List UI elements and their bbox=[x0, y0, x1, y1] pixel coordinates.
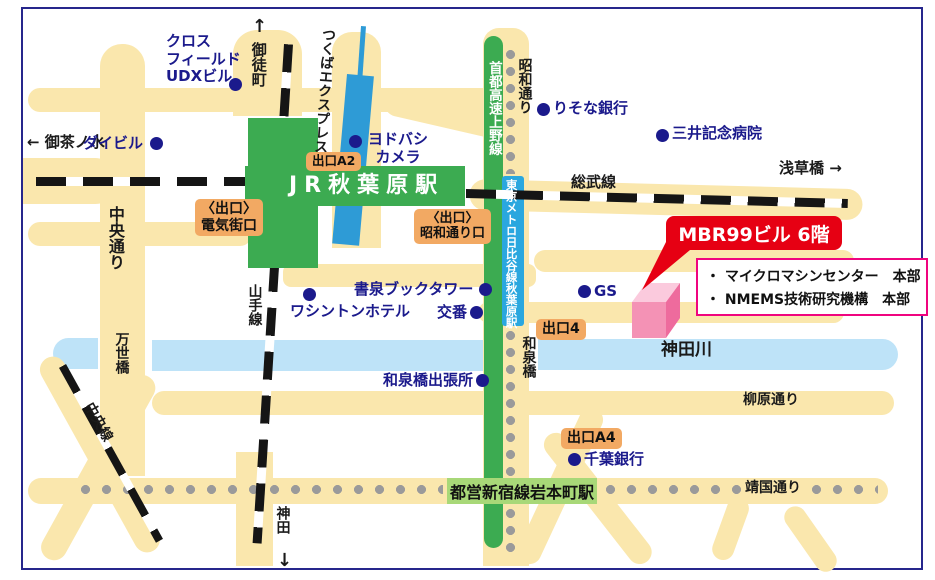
label-kanda-arrow: ↓ bbox=[277, 550, 292, 571]
label-chuo-dori: 中央通り bbox=[105, 206, 124, 270]
poi-crossfield-udx: クロス フィールド UDXビル bbox=[166, 33, 241, 86]
shinjuku-line-dots-right bbox=[806, 484, 878, 495]
label-manseibashi: 万世橋 bbox=[113, 332, 130, 374]
poi-risona-bank: りそな銀行 bbox=[553, 100, 628, 118]
tenant-item-micromachine-center: ・ マイクロマシンセンター 本部 bbox=[706, 266, 926, 286]
poi-mitsui-hospital: 三井記念病院 bbox=[672, 125, 762, 143]
poi-izumibashi-office: 和泉橋出張所 bbox=[383, 372, 473, 390]
poi-marker-dot bbox=[470, 306, 483, 319]
poi-gs: GS bbox=[594, 283, 617, 301]
poi-yodobashi-camera: ヨドバシ カメラ bbox=[366, 131, 430, 166]
sobu-line-rail-west bbox=[36, 177, 246, 186]
label-shuto-expressway: 首都高速上野線 bbox=[485, 61, 501, 156]
access-map: JR秋葉原駅 都営新宿線岩本町駅 MBR99ビル 6階 ・ マイクロマシンセンタ… bbox=[0, 0, 935, 580]
metro-dotted-line-vertical-mid bbox=[505, 327, 516, 476]
poi-marker-dot bbox=[303, 288, 316, 301]
mbr99-callout: MBR99ビル 6階 bbox=[666, 216, 842, 250]
poi-marker-dot bbox=[537, 103, 550, 116]
poi-marker-dot bbox=[349, 135, 362, 148]
poi-marker-dot bbox=[578, 285, 591, 298]
poi-shosen-book-tower: 書泉ブックタワー bbox=[354, 281, 473, 299]
badge-exit-denkigai: 〈出口〉 電気街口 bbox=[195, 199, 263, 236]
poi-marker-dot bbox=[568, 453, 581, 466]
label-okachimachi: 御徒町 bbox=[249, 42, 267, 87]
label-kanda-river: 神田川 bbox=[661, 340, 712, 360]
label-yanagihara-dori: 柳原通り bbox=[743, 392, 799, 409]
poi-marker-dot bbox=[479, 283, 492, 296]
label-yasukuni-dori: 靖国通り bbox=[745, 480, 801, 497]
poi-daibiru: ダイビル bbox=[83, 135, 143, 153]
toei-iwamotocho-station: 都営新宿線岩本町駅 bbox=[447, 478, 597, 504]
badge-exit-showadori: 〈出口〉 昭和通り口 bbox=[414, 209, 491, 244]
label-okachimachi-arrow: ↑ bbox=[252, 16, 267, 37]
jr-akihabara-station-name: JR秋葉原駅 bbox=[245, 166, 465, 206]
label-metro-hibiya-akihabara: 東京メトロ日比谷線秋葉原駅 bbox=[504, 179, 518, 329]
badge-exit-4: 出口4 bbox=[536, 319, 586, 340]
poi-chiba-bank: 千葉銀行 bbox=[584, 451, 644, 469]
metro-dotted-line-vertical-bottom bbox=[505, 505, 516, 552]
mbr99-callout-title: MBR99ビル 6階 bbox=[678, 220, 829, 247]
poi-koban: 交番 bbox=[437, 304, 467, 322]
label-asakusabashi: 浅草橋 → bbox=[779, 160, 842, 178]
toei-iwamotocho-station-name: 都営新宿線岩本町駅 bbox=[450, 479, 594, 503]
poi-marker-dot bbox=[476, 374, 489, 387]
label-showa-dori: 昭和通り bbox=[516, 58, 533, 114]
tenant-info-box: ・ マイクロマシンセンター 本部 ・ NMEMS技術研究機構 本部 bbox=[696, 258, 928, 316]
label-kanda: 神田 bbox=[274, 506, 291, 534]
label-yamanote-line: 山手線 bbox=[246, 284, 263, 326]
badge-exit-a2: 出口A2 bbox=[306, 152, 361, 171]
metro-dotted-line-vertical-top bbox=[505, 46, 516, 174]
tenant-item-nmems: ・ NMEMS技術研究機構 本部 bbox=[706, 289, 926, 309]
poi-marker-dot bbox=[656, 129, 669, 142]
label-izumibashi: 和泉橋 bbox=[520, 336, 537, 378]
poi-washington-hotel: ワシントンホテル bbox=[290, 303, 410, 321]
kanda-river-segment-mid bbox=[152, 340, 484, 371]
label-sobu-line: 総武線 bbox=[571, 174, 616, 192]
badge-exit-a4: 出口A4 bbox=[561, 428, 622, 449]
kanda-river-segment-right bbox=[538, 339, 898, 370]
jr-akihabara-station: JR秋葉原駅 bbox=[245, 166, 465, 206]
poi-marker-dot bbox=[229, 78, 242, 91]
shinjuku-line-dots-mid bbox=[600, 484, 742, 495]
poi-marker-dot bbox=[150, 137, 163, 150]
